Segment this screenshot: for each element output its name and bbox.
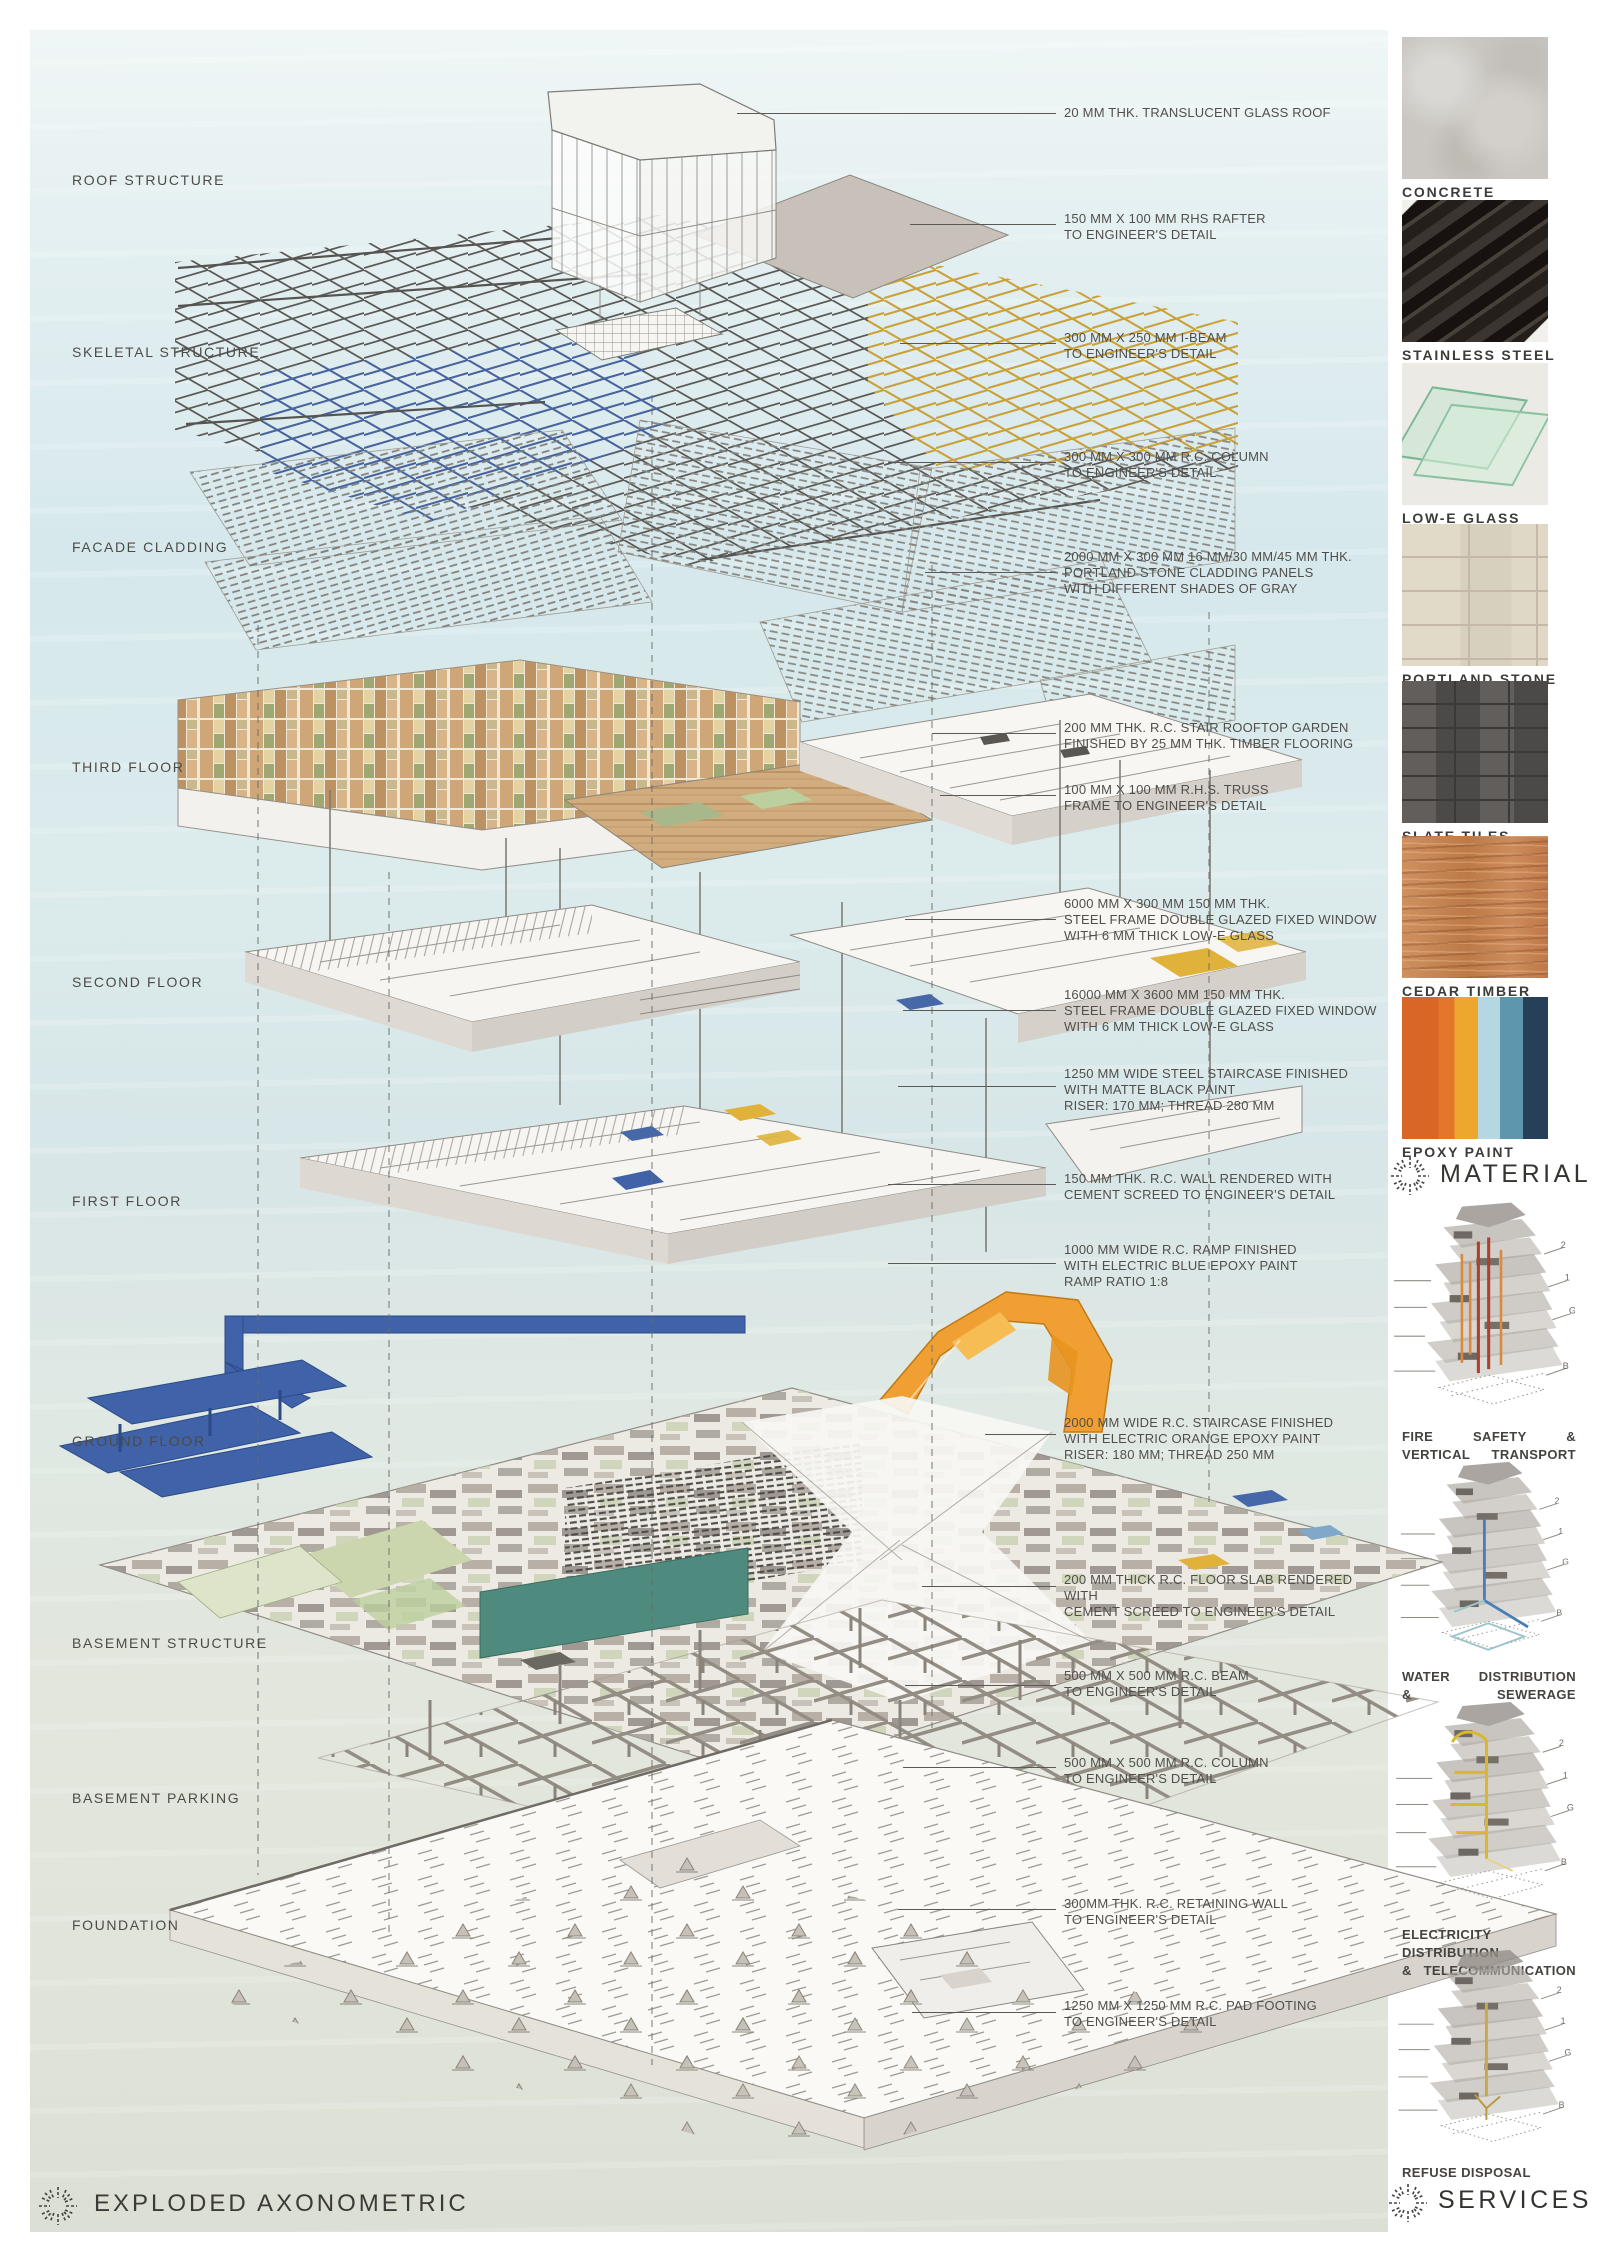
starburst-icon bbox=[36, 2184, 80, 2228]
service-label-water: WATER DISTRIBUTION& SEWERAGE bbox=[1402, 1668, 1576, 1704]
page-title: EXPLODED AXONOMETRIC bbox=[94, 2190, 469, 2218]
starburst-icon bbox=[1388, 1154, 1432, 1198]
starburst-icon bbox=[1386, 2181, 1430, 2225]
blue-stair-patch bbox=[896, 994, 944, 1010]
second-floor bbox=[245, 888, 1306, 1052]
presentation-board: ROOF STRUCTURE SKELETAL STRUCTURE FACADE… bbox=[0, 0, 1600, 2259]
electricity-diagram bbox=[1390, 1700, 1575, 1916]
exploded-axonometric-drawing bbox=[0, 0, 1600, 2259]
material-heading: MATERIAL bbox=[1440, 1160, 1591, 1189]
services-heading: SERVICES bbox=[1438, 2186, 1592, 2215]
first-floor bbox=[300, 1086, 1302, 1264]
refuse-disposal-diagram bbox=[1390, 1948, 1575, 2158]
fire-safety-diagram bbox=[1390, 1198, 1575, 1424]
service-label-fire: FIRE SAFETY &VERTICAL TRANSPORT bbox=[1402, 1428, 1576, 1464]
water-distribution-diagram bbox=[1390, 1460, 1575, 1664]
service-label-refuse: REFUSE DISPOSAL bbox=[1402, 2164, 1576, 2182]
